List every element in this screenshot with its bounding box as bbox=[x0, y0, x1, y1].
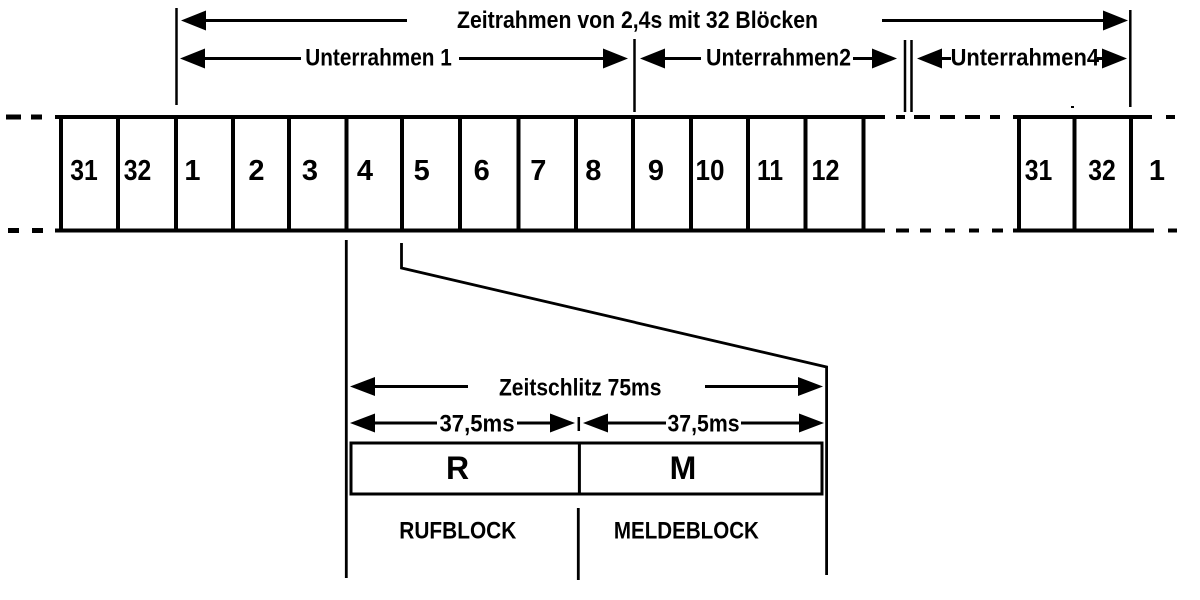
svg-text:5: 5 bbox=[414, 155, 430, 187]
svg-text:3: 3 bbox=[302, 155, 318, 187]
svg-text:R: R bbox=[446, 450, 469, 486]
svg-text:9: 9 bbox=[648, 155, 664, 187]
svg-text:Unterrahmen4: Unterrahmen4 bbox=[951, 45, 1100, 72]
svg-text:M: M bbox=[670, 450, 697, 486]
svg-text:10: 10 bbox=[696, 155, 725, 187]
svg-text:32: 32 bbox=[124, 155, 152, 187]
svg-text:12: 12 bbox=[812, 155, 840, 187]
svg-text:11: 11 bbox=[757, 155, 783, 187]
svg-text:2: 2 bbox=[248, 155, 264, 187]
svg-text:Zeitrahmen von 2,4s mit 32 Blö: Zeitrahmen von 2,4s mit 32 Blöcken bbox=[457, 7, 818, 34]
svg-text:RUFBLOCK: RUFBLOCK bbox=[399, 518, 517, 545]
svg-text:Zeitschlitz 75ms: Zeitschlitz 75ms bbox=[499, 375, 662, 402]
svg-text:Unterrahmen2: Unterrahmen2 bbox=[706, 45, 851, 72]
svg-text:31: 31 bbox=[1025, 155, 1053, 187]
svg-text:7: 7 bbox=[530, 155, 546, 187]
svg-text:1: 1 bbox=[184, 155, 200, 187]
svg-text:37,5ms: 37,5ms bbox=[668, 411, 740, 438]
svg-text:4: 4 bbox=[357, 155, 373, 187]
svg-text:31: 31 bbox=[70, 155, 98, 187]
svg-text:Unterrahmen 1: Unterrahmen 1 bbox=[305, 45, 452, 72]
svg-text:6: 6 bbox=[474, 155, 490, 187]
svg-text:1: 1 bbox=[1149, 155, 1165, 187]
svg-text:37,5ms: 37,5ms bbox=[440, 411, 515, 438]
svg-text:32: 32 bbox=[1088, 155, 1116, 187]
svg-text:MELDEBLOCK: MELDEBLOCK bbox=[614, 518, 760, 545]
svg-text:8: 8 bbox=[585, 155, 601, 187]
